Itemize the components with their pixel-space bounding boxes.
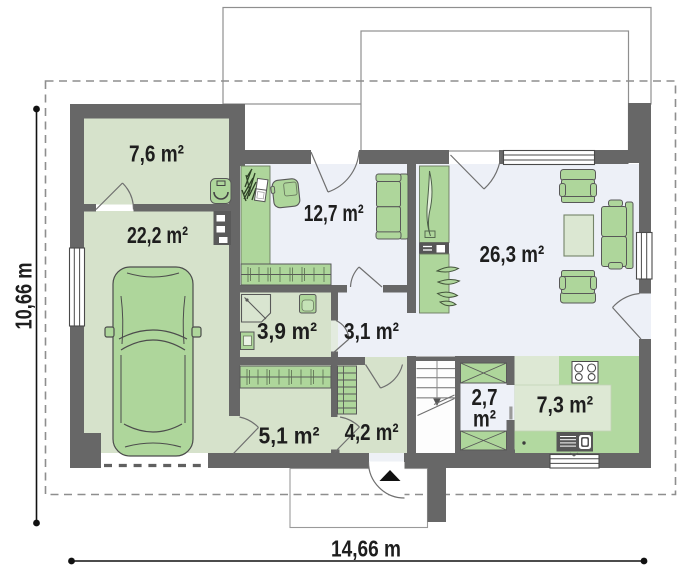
svg-text:26,3 m²: 26,3 m² xyxy=(480,241,545,267)
svg-text:m²: m² xyxy=(473,405,496,431)
svg-text:12,7 m²: 12,7 m² xyxy=(304,200,364,226)
svg-text:5,1 m²: 5,1 m² xyxy=(259,422,320,448)
svg-text:14,66 m: 14,66 m xyxy=(331,536,401,562)
svg-text:3,9 m²: 3,9 m² xyxy=(257,318,317,344)
svg-text:7,3 m²: 7,3 m² xyxy=(537,391,594,417)
svg-text:4,2 m²: 4,2 m² xyxy=(345,419,399,445)
svg-text:10,66 m: 10,66 m xyxy=(11,263,37,330)
svg-text:22,2 m²: 22,2 m² xyxy=(127,222,188,248)
svg-text:3,1 m²: 3,1 m² xyxy=(344,318,399,344)
svg-text:7,6 m²: 7,6 m² xyxy=(129,141,184,167)
